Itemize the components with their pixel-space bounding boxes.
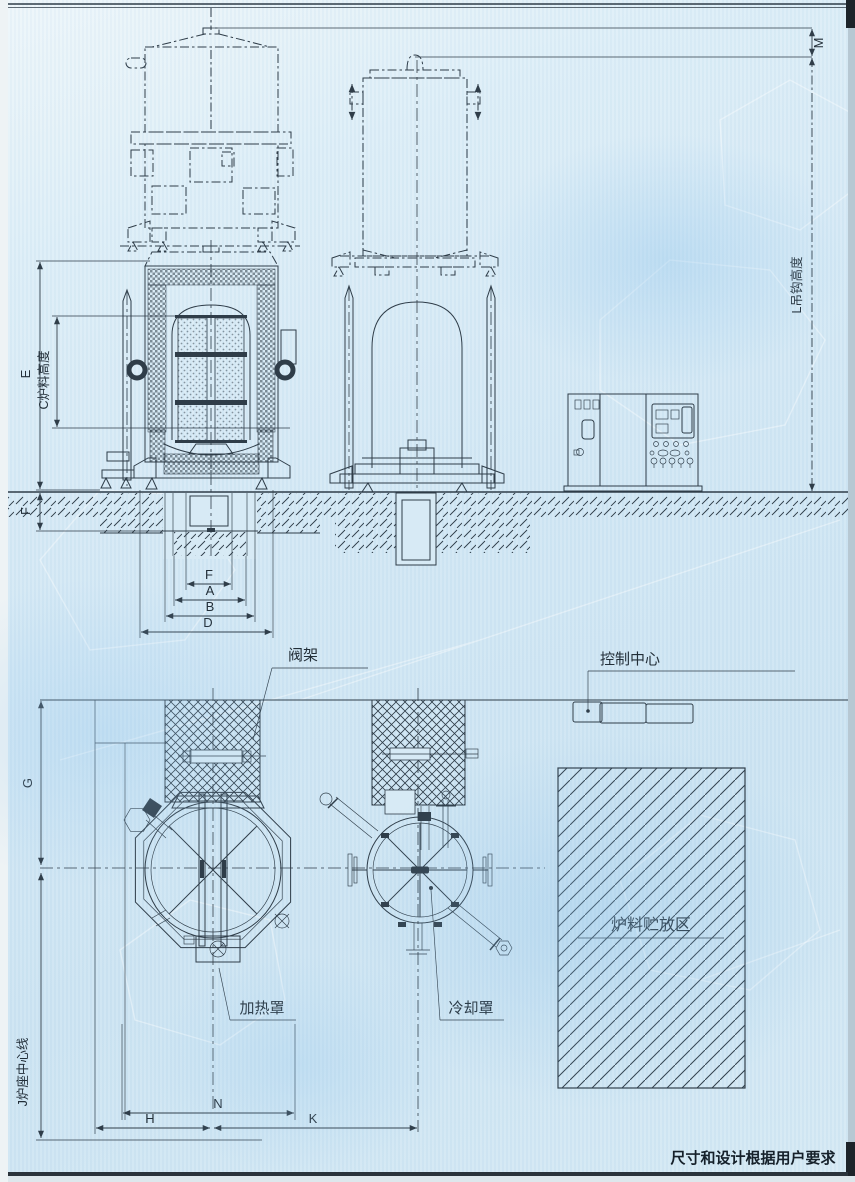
- dim-B: B: [206, 599, 215, 614]
- dim-E: E: [18, 369, 33, 378]
- storage-area-plan: 炉料贮放区: [558, 768, 745, 1088]
- cooling-cover-plan: [320, 791, 512, 955]
- cooling-station-elevation: [330, 60, 504, 560]
- dim-F-pit: F: [205, 567, 213, 582]
- plan-view: 炉料贮放区 控制中心 阀架 加热罩 冷却罩: [15, 647, 848, 1140]
- dim-D: D: [203, 615, 212, 630]
- heating-cover-label: 加热罩: [239, 1000, 284, 1017]
- valve-rack-2-plan: [372, 700, 478, 814]
- foundation-pit-2: [335, 493, 530, 565]
- valve-rack-text: 阀架: [288, 647, 318, 664]
- valve-rack-1-plan: [165, 700, 266, 802]
- cooling-cover-label: 冷却罩: [448, 1000, 493, 1017]
- heating-furnace-section: [101, 240, 296, 489]
- foundation-pit-1: [100, 472, 320, 559]
- heating-cover-raised-elevation: [120, 8, 300, 251]
- cover-labels: 加热罩 冷却罩: [219, 890, 504, 1020]
- cooling-cover-raised-elevation: [332, 55, 498, 276]
- hook-height-lines: M L吊钩高度: [211, 28, 826, 491]
- base-centerline-label: J炉座中心线: [15, 1037, 30, 1106]
- dim-A: A: [206, 583, 215, 598]
- dim-G: G: [20, 778, 35, 788]
- hook-height-label: L吊钩高度: [789, 256, 804, 313]
- heating-cover-plan: [124, 792, 291, 962]
- control-center-label: 控制中心: [600, 651, 660, 668]
- scanned-drawing-page: M L吊钩高度: [0, 0, 855, 1182]
- dim-M: M: [811, 38, 826, 49]
- dim-K: K: [309, 1111, 318, 1126]
- dim-F-left: F: [18, 507, 33, 515]
- valve-rack-label: 阀架: [253, 647, 368, 740]
- dim-N: N: [213, 1096, 222, 1111]
- control-cabinet-elevation: [564, 394, 702, 491]
- storage-area-label: 炉料贮放区: [611, 916, 691, 934]
- charge-height-label: C炉料高度: [36, 350, 51, 410]
- dim-H: H: [145, 1111, 154, 1126]
- control-center-plan: 控制中心: [573, 651, 795, 723]
- furnace-installation-drawing: M L吊钩高度: [0, 0, 855, 1182]
- drawing-note: 尺寸和设计根据用户要求: [670, 1149, 836, 1167]
